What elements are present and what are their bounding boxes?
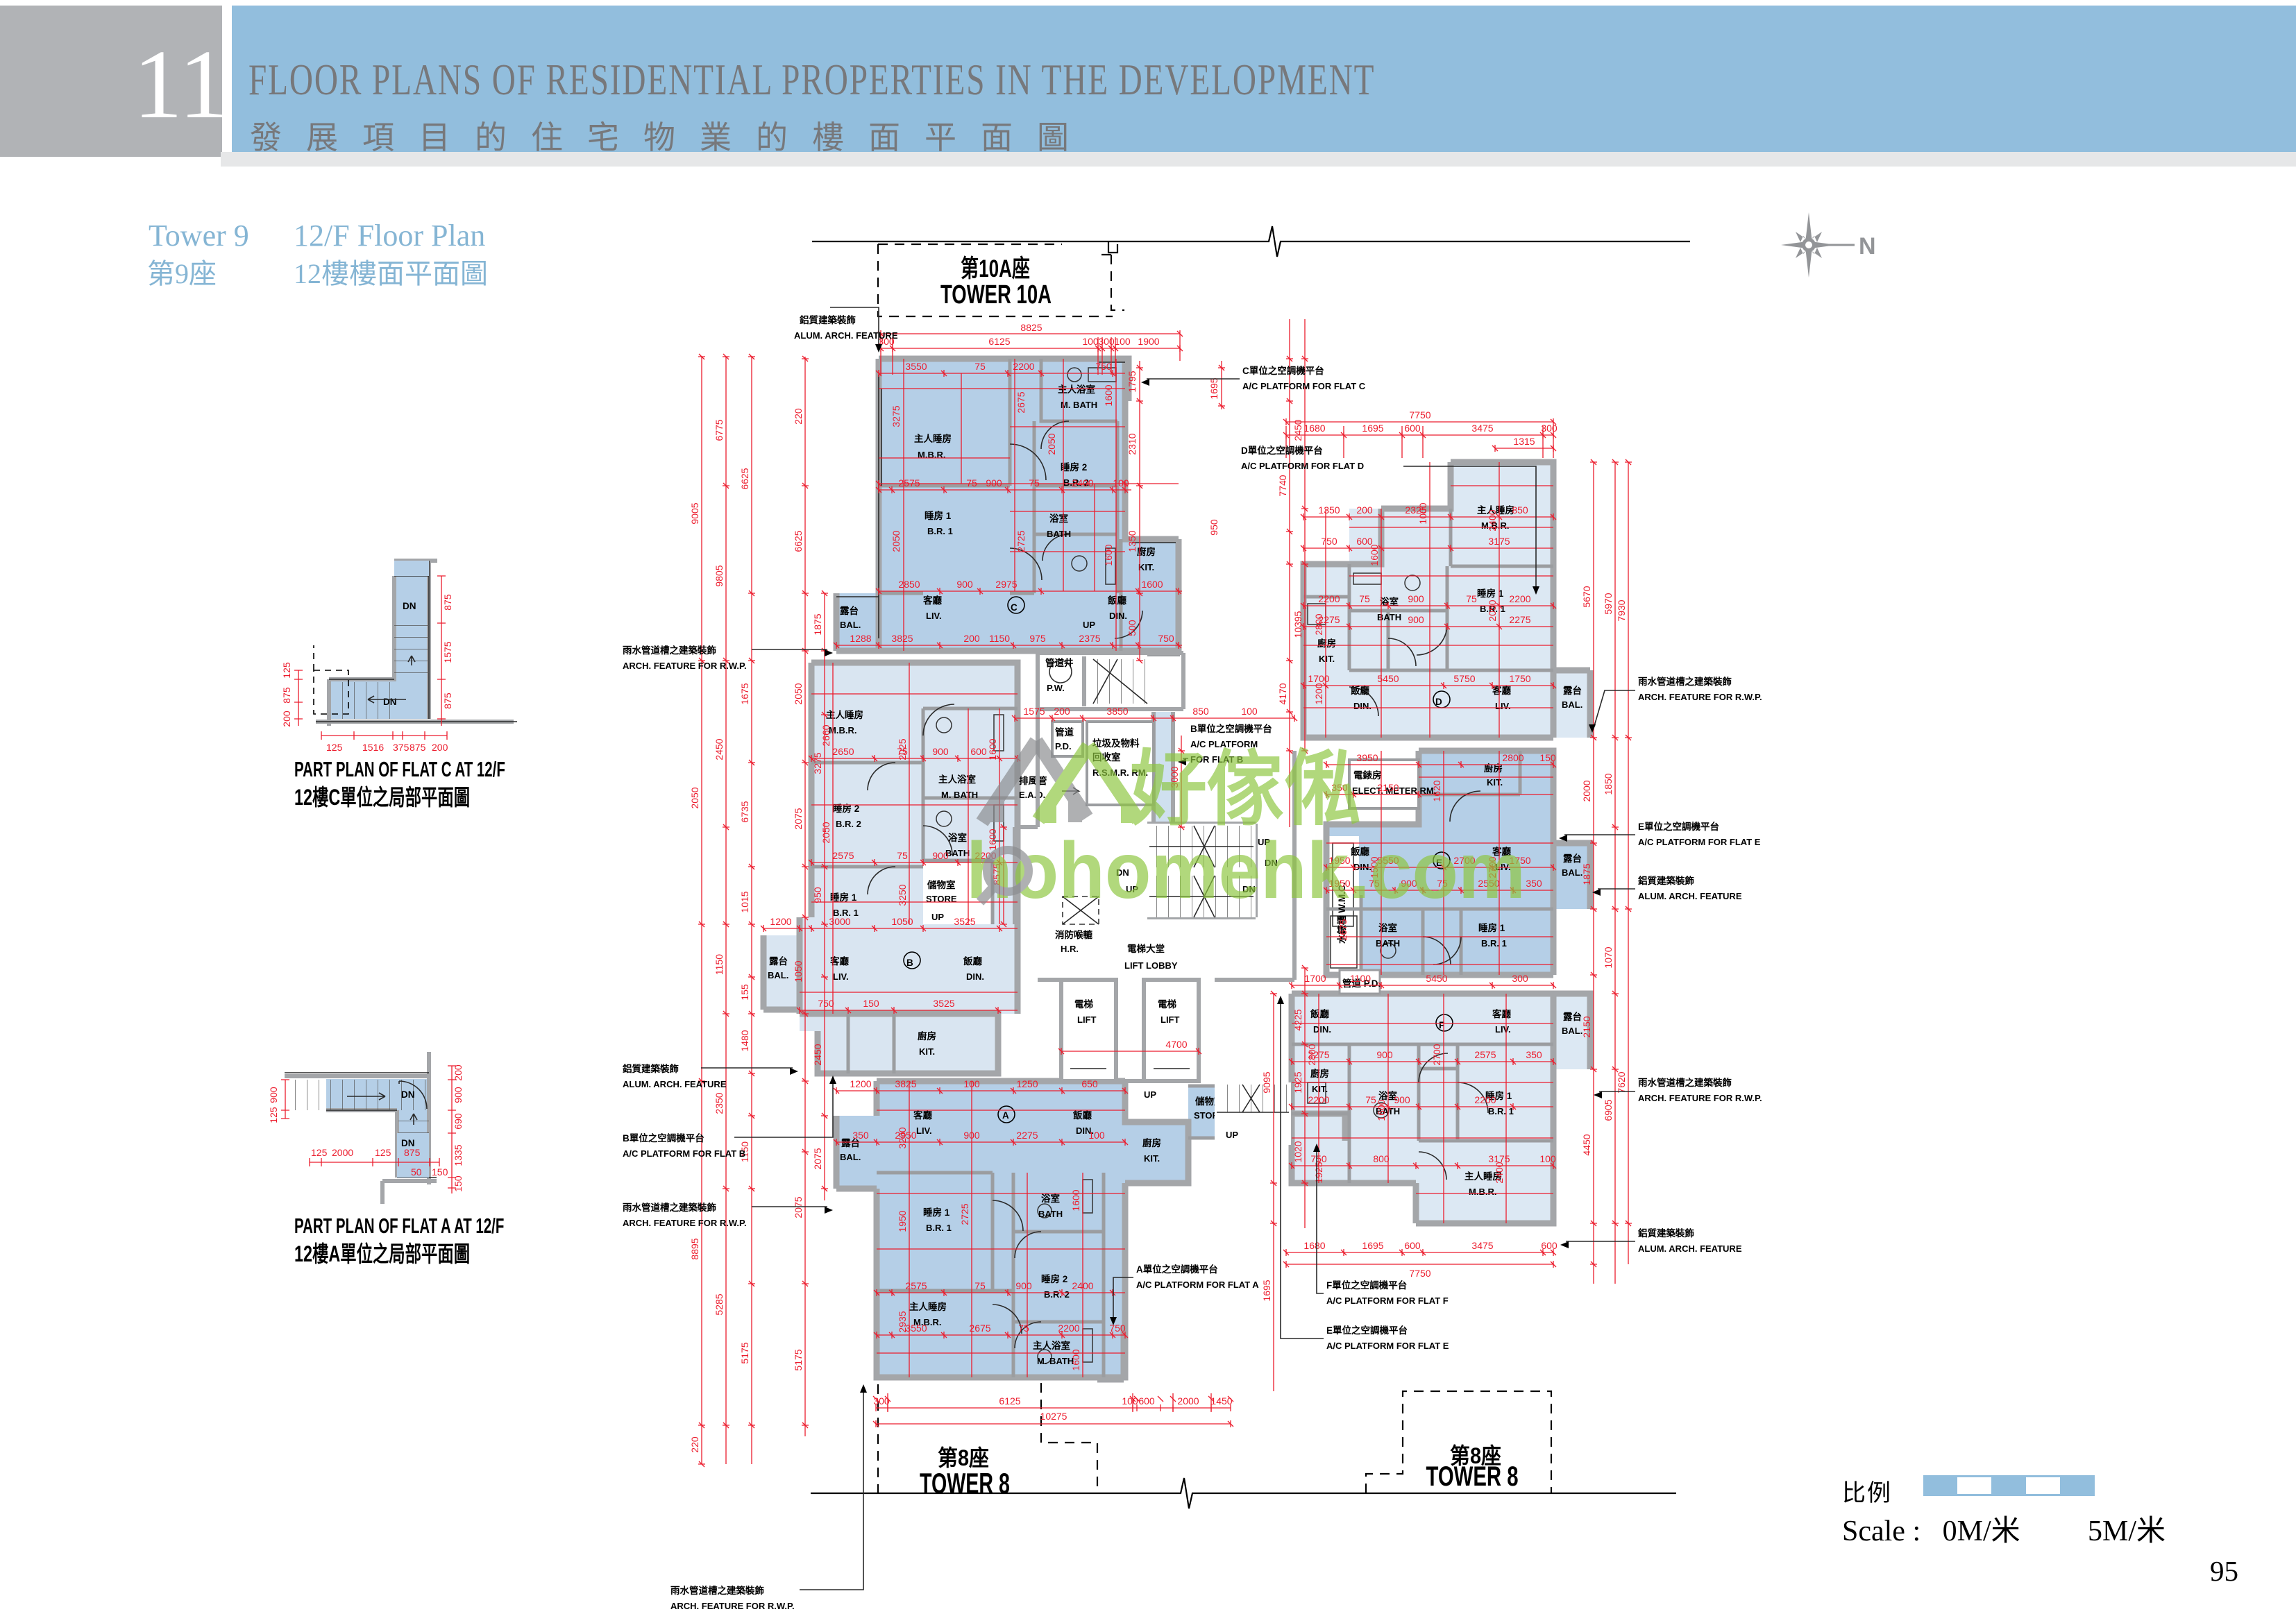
svg-text:75: 75 bbox=[974, 1280, 986, 1291]
svg-text:2375: 2375 bbox=[1079, 633, 1100, 644]
svg-text:2800: 2800 bbox=[1502, 752, 1523, 763]
svg-text:900: 900 bbox=[1394, 1094, 1410, 1105]
svg-text:2800: 2800 bbox=[1313, 613, 1324, 635]
svg-text:100: 100 bbox=[1082, 336, 1099, 347]
svg-text:2200: 2200 bbox=[1013, 361, 1034, 372]
svg-text:KIT.: KIT. bbox=[1138, 562, 1154, 572]
svg-text:3275: 3275 bbox=[890, 405, 902, 427]
svg-text:LIV.: LIV. bbox=[833, 971, 849, 982]
svg-text:100: 100 bbox=[1539, 1153, 1556, 1164]
svg-text:B: B bbox=[906, 958, 913, 968]
svg-text:B單位之空調機平台: B單位之空調機平台 bbox=[623, 1132, 704, 1144]
svg-text:雨水管道槽之建築裝飾: 雨水管道槽之建築裝飾 bbox=[670, 1585, 764, 1596]
svg-text:睡房 2: 睡房 2 bbox=[1061, 461, 1087, 473]
svg-text:100: 100 bbox=[1241, 706, 1258, 717]
svg-text:200: 200 bbox=[1356, 504, 1373, 516]
svg-text:2200: 2200 bbox=[1058, 1323, 1079, 1334]
svg-text:900: 900 bbox=[986, 477, 1002, 488]
svg-text:2075: 2075 bbox=[812, 1148, 823, 1169]
svg-text:1050: 1050 bbox=[891, 916, 913, 927]
svg-text:1600: 1600 bbox=[1376, 1099, 1387, 1121]
svg-text:1875: 1875 bbox=[1581, 863, 1592, 885]
svg-text:主人睡房: 主人睡房 bbox=[914, 433, 952, 444]
svg-text:2050: 2050 bbox=[890, 530, 902, 552]
svg-text:P.W.: P.W. bbox=[1047, 683, 1065, 693]
svg-text:75: 75 bbox=[974, 361, 986, 372]
svg-text:2650: 2650 bbox=[832, 746, 854, 757]
svg-text:4225: 4225 bbox=[1292, 1009, 1303, 1030]
svg-text:A/C PLATFORM FOR FLAT F: A/C PLATFORM FOR FLAT F bbox=[1326, 1295, 1449, 1306]
svg-text:9005: 9005 bbox=[689, 502, 700, 524]
svg-text:BAL.: BAL. bbox=[1562, 1026, 1582, 1036]
svg-text:KIT.: KIT. bbox=[919, 1046, 935, 1057]
svg-text:DN: DN bbox=[383, 697, 397, 707]
svg-text:150: 150 bbox=[1539, 752, 1556, 763]
svg-text:2450: 2450 bbox=[714, 738, 725, 760]
svg-text:100: 100 bbox=[1114, 336, 1131, 347]
svg-text:50: 50 bbox=[411, 1166, 422, 1178]
svg-text:2275: 2275 bbox=[1509, 614, 1530, 625]
svg-text:廚房: 廚房 bbox=[1142, 1137, 1161, 1148]
svg-text:UP: UP bbox=[1083, 620, 1095, 630]
svg-text:主人睡房: 主人睡房 bbox=[826, 709, 863, 720]
svg-text:125: 125 bbox=[326, 742, 343, 753]
svg-text:750: 750 bbox=[1095, 361, 1112, 372]
svg-text:睡房 1: 睡房 1 bbox=[923, 1207, 950, 1218]
svg-text:3825: 3825 bbox=[891, 633, 913, 644]
svg-text:A/C PLATFORM FOR FLAT E: A/C PLATFORM FOR FLAT E bbox=[1326, 1341, 1449, 1351]
svg-text:3525: 3525 bbox=[954, 916, 975, 927]
svg-text:2025: 2025 bbox=[897, 738, 908, 760]
svg-text:2700: 2700 bbox=[1431, 1044, 1442, 1065]
svg-text:2000: 2000 bbox=[1581, 780, 1592, 801]
svg-text:飯廳: 飯廳 bbox=[1072, 1110, 1092, 1121]
svg-text:電梯: 電梯 bbox=[1158, 999, 1177, 1010]
svg-text:露台: 露台 bbox=[1563, 1011, 1582, 1022]
svg-text:75: 75 bbox=[1359, 593, 1370, 604]
svg-text:750: 750 bbox=[1109, 1323, 1126, 1334]
svg-text:1250: 1250 bbox=[1016, 1078, 1038, 1089]
svg-text:浴室: 浴室 bbox=[1049, 513, 1069, 524]
svg-text:2725: 2725 bbox=[959, 1203, 970, 1225]
svg-text:125: 125 bbox=[375, 1147, 391, 1158]
svg-text:500: 500 bbox=[1126, 620, 1138, 636]
svg-text:975: 975 bbox=[1029, 633, 1046, 644]
svg-text:2150: 2150 bbox=[1377, 782, 1399, 793]
svg-text:1700: 1700 bbox=[1304, 973, 1326, 984]
svg-text:300: 300 bbox=[1541, 423, 1558, 434]
svg-text:6905: 6905 bbox=[1603, 1099, 1614, 1121]
svg-text:2575: 2575 bbox=[905, 1280, 927, 1291]
svg-text:2200: 2200 bbox=[1474, 1094, 1496, 1105]
svg-text:好傢俬: 好傢俬 bbox=[1129, 744, 1361, 835]
svg-text:鋁質建築裝飾: 鋁質建築裝飾 bbox=[623, 1063, 679, 1074]
svg-text:1925: 1925 bbox=[1313, 1162, 1324, 1183]
svg-text:消防喉轆: 消防喉轆 bbox=[1055, 929, 1092, 940]
svg-text:1600: 1600 bbox=[1103, 544, 1114, 566]
svg-text:DIN.: DIN. bbox=[1353, 701, 1371, 711]
svg-text:850: 850 bbox=[1192, 706, 1209, 717]
svg-text:7750: 7750 bbox=[1409, 409, 1430, 420]
svg-text:1875: 1875 bbox=[812, 613, 823, 635]
svg-text:1200: 1200 bbox=[770, 916, 791, 927]
svg-text:875: 875 bbox=[442, 594, 453, 611]
svg-text:A/C PLATFORM FOR FLAT D: A/C PLATFORM FOR FLAT D bbox=[1241, 461, 1364, 471]
svg-text:電梯: 電梯 bbox=[1074, 999, 1094, 1010]
svg-text:DN: DN bbox=[403, 601, 416, 611]
svg-text:A/C PLATFORM FOR FLAT C: A/C PLATFORM FOR FLAT C bbox=[1242, 381, 1366, 391]
svg-text:2975: 2975 bbox=[995, 579, 1017, 590]
svg-text:200: 200 bbox=[432, 742, 448, 753]
svg-text:9805: 9805 bbox=[714, 565, 725, 586]
svg-text:1900: 1900 bbox=[1138, 336, 1159, 347]
svg-text:2660: 2660 bbox=[820, 724, 832, 746]
svg-text:2200: 2200 bbox=[1509, 593, 1530, 604]
svg-text:DIN.: DIN. bbox=[1313, 1024, 1331, 1035]
svg-text:露台: 露台 bbox=[769, 955, 788, 967]
svg-text:2675: 2675 bbox=[969, 1323, 990, 1334]
svg-text:1695: 1695 bbox=[1208, 377, 1219, 399]
svg-text:900: 900 bbox=[932, 746, 949, 757]
svg-text:鋁質建築裝飾: 鋁質建築裝飾 bbox=[800, 314, 856, 325]
svg-text:B.R. 2: B.R. 2 bbox=[836, 819, 861, 829]
svg-text:UP: UP bbox=[931, 912, 944, 922]
svg-text:5175: 5175 bbox=[793, 1349, 804, 1370]
svg-text:100: 100 bbox=[1088, 1130, 1105, 1141]
svg-text:900: 900 bbox=[1408, 614, 1424, 625]
svg-text:廚房: 廚房 bbox=[1310, 1068, 1329, 1079]
svg-text:75: 75 bbox=[966, 477, 977, 488]
svg-text:TOWER 8: TOWER 8 bbox=[920, 1467, 1010, 1499]
svg-text:客廳: 客廳 bbox=[913, 1110, 933, 1121]
svg-text:1750: 1750 bbox=[1509, 673, 1530, 684]
svg-text:1020: 1020 bbox=[1292, 1141, 1303, 1162]
svg-text:1288: 1288 bbox=[850, 633, 871, 644]
svg-text:6775: 6775 bbox=[714, 419, 725, 441]
svg-text:1070: 1070 bbox=[1603, 946, 1614, 968]
svg-text:1015: 1015 bbox=[739, 891, 750, 912]
svg-text:UP: UP bbox=[1226, 1130, 1238, 1140]
svg-text:155: 155 bbox=[739, 984, 750, 1001]
svg-text:TOWER 10A: TOWER 10A bbox=[940, 280, 1052, 309]
svg-text:管道: 管道 bbox=[1055, 726, 1074, 738]
svg-text:5450: 5450 bbox=[1426, 973, 1447, 984]
svg-text:2675: 2675 bbox=[1015, 391, 1027, 413]
svg-text:6735: 6735 bbox=[739, 801, 750, 822]
svg-text:2050: 2050 bbox=[820, 822, 832, 843]
svg-text:750: 750 bbox=[1321, 536, 1337, 547]
svg-text:350: 350 bbox=[1526, 1049, 1542, 1060]
svg-text:STORE: STORE bbox=[926, 894, 957, 904]
svg-text:BAL.: BAL. bbox=[1562, 867, 1582, 878]
svg-text:1050: 1050 bbox=[793, 960, 804, 982]
svg-text:1335: 1335 bbox=[453, 1144, 464, 1166]
svg-text:E單位之空調機平台: E單位之空調機平台 bbox=[1638, 821, 1719, 832]
svg-text:露台: 露台 bbox=[1563, 853, 1582, 864]
svg-text:主人睡房: 主人睡房 bbox=[909, 1301, 947, 1312]
svg-text:7620: 7620 bbox=[1616, 1071, 1627, 1093]
svg-text:3550: 3550 bbox=[905, 361, 927, 372]
svg-text:2075: 2075 bbox=[793, 1196, 804, 1218]
svg-text:2275: 2275 bbox=[1016, 1130, 1038, 1141]
svg-text:2450: 2450 bbox=[812, 1044, 823, 1065]
svg-text:350: 350 bbox=[1526, 878, 1542, 889]
svg-text:2075: 2075 bbox=[793, 808, 804, 829]
svg-text:BAL.: BAL. bbox=[840, 620, 861, 630]
svg-text:5175: 5175 bbox=[739, 1342, 750, 1363]
svg-text:2400: 2400 bbox=[1072, 477, 1093, 488]
svg-text:900: 900 bbox=[268, 1087, 279, 1103]
svg-text:1695: 1695 bbox=[1261, 1280, 1272, 1301]
svg-text:900: 900 bbox=[1376, 1049, 1393, 1060]
svg-text:D: D bbox=[1435, 697, 1442, 707]
svg-text:BATH: BATH bbox=[1047, 529, 1071, 539]
svg-text:BAL.: BAL. bbox=[768, 970, 788, 980]
svg-text:600: 600 bbox=[970, 746, 987, 757]
svg-text:M. BATH: M. BATH bbox=[941, 790, 978, 800]
svg-text:100: 100 bbox=[1113, 477, 1129, 488]
svg-text:1150: 1150 bbox=[714, 954, 725, 975]
svg-text:2050: 2050 bbox=[689, 787, 700, 808]
svg-text:1315: 1315 bbox=[1513, 436, 1535, 447]
svg-text:A: A bbox=[1002, 1110, 1009, 1121]
svg-text:飯廳: 飯廳 bbox=[963, 955, 983, 967]
svg-text:2050: 2050 bbox=[793, 683, 804, 704]
svg-text:ARCH. FEATURE FOR R.W.P.: ARCH. FEATURE FOR R.W.P. bbox=[623, 1218, 747, 1228]
svg-text:BAL.: BAL. bbox=[1562, 699, 1582, 710]
svg-text:E.A.D.: E.A.D. bbox=[1019, 790, 1045, 800]
svg-text:6625: 6625 bbox=[793, 530, 804, 552]
svg-text:300: 300 bbox=[1512, 973, 1528, 984]
svg-text:1680: 1680 bbox=[1303, 1240, 1325, 1251]
svg-text:飯廳: 飯廳 bbox=[1310, 1008, 1330, 1019]
svg-text:1350: 1350 bbox=[1126, 530, 1138, 552]
svg-text:鋁質建築裝飾: 鋁質建築裝飾 bbox=[1638, 875, 1694, 886]
svg-text:1600: 1600 bbox=[1141, 579, 1163, 590]
svg-text:C: C bbox=[1011, 602, 1018, 613]
svg-text:950: 950 bbox=[812, 887, 823, 903]
svg-text:5670: 5670 bbox=[1581, 586, 1592, 607]
svg-text:3550: 3550 bbox=[905, 1323, 927, 1334]
svg-text:1600: 1600 bbox=[1070, 1189, 1081, 1211]
svg-text:LIFT: LIFT bbox=[1077, 1014, 1096, 1025]
svg-text:2675: 2675 bbox=[1337, 919, 1349, 940]
svg-text:2400: 2400 bbox=[1487, 509, 1498, 531]
svg-text:TOWER 8: TOWER 8 bbox=[1426, 1461, 1519, 1492]
svg-text:1675: 1675 bbox=[739, 683, 750, 704]
svg-text:ARCH. FEATURE FOR R.W.P.: ARCH. FEATURE FOR R.W.P. bbox=[1638, 1093, 1762, 1103]
svg-text:950: 950 bbox=[1208, 519, 1219, 536]
svg-text:雨水管道槽之建築裝飾: 雨水管道槽之建築裝飾 bbox=[1638, 1077, 1732, 1088]
svg-text:1575: 1575 bbox=[442, 641, 453, 663]
svg-text:2800: 2800 bbox=[1306, 1044, 1317, 1065]
svg-text:9095: 9095 bbox=[1261, 1071, 1272, 1093]
svg-text:1200: 1200 bbox=[1313, 683, 1324, 704]
svg-text:2400: 2400 bbox=[1494, 1162, 1505, 1183]
svg-text:690: 690 bbox=[453, 1113, 464, 1130]
svg-text:1350: 1350 bbox=[1318, 504, 1340, 516]
svg-text:3275: 3275 bbox=[812, 752, 823, 774]
svg-text:1600: 1600 bbox=[1369, 544, 1380, 566]
svg-text:125: 125 bbox=[268, 1107, 279, 1123]
svg-text:1575: 1575 bbox=[1023, 706, 1045, 717]
svg-text:F單位之空調機平台: F單位之空調機平台 bbox=[1326, 1280, 1407, 1291]
svg-text:A單位之空調機平台: A單位之空調機平台 bbox=[1136, 1264, 1218, 1275]
svg-text:B.R. 1: B.R. 1 bbox=[1488, 1106, 1514, 1116]
svg-text:900: 900 bbox=[956, 579, 973, 590]
svg-text:7930: 7930 bbox=[1616, 600, 1627, 621]
svg-text:900: 900 bbox=[932, 850, 949, 861]
svg-text:200: 200 bbox=[963, 633, 980, 644]
svg-text:ALUM. ARCH. FEATURE: ALUM. ARCH. FEATURE bbox=[1638, 891, 1742, 901]
svg-text:875: 875 bbox=[410, 742, 426, 753]
svg-text:睡房 2: 睡房 2 bbox=[1041, 1273, 1067, 1284]
svg-text:5285: 5285 bbox=[714, 1293, 725, 1315]
svg-text:220: 220 bbox=[793, 408, 804, 425]
svg-text:75: 75 bbox=[1029, 477, 1040, 488]
svg-text:800: 800 bbox=[1373, 1153, 1390, 1164]
svg-text:ALUM. ARCH. FEATURE: ALUM. ARCH. FEATURE bbox=[623, 1079, 727, 1089]
svg-text:客廳: 客廳 bbox=[1492, 1008, 1512, 1019]
svg-text:B.R. 1: B.R. 1 bbox=[927, 526, 953, 536]
svg-text:2000: 2000 bbox=[332, 1147, 353, 1158]
svg-text:客廳: 客廳 bbox=[922, 595, 943, 606]
svg-text:儲物室: 儲物室 bbox=[927, 879, 956, 890]
svg-text:1850: 1850 bbox=[1603, 773, 1614, 794]
svg-text:7740: 7740 bbox=[1277, 475, 1288, 496]
svg-text:LIV.: LIV. bbox=[1495, 701, 1511, 711]
svg-text:D單位之空調機平台: D單位之空調機平台 bbox=[1241, 445, 1323, 456]
svg-text:650: 650 bbox=[1081, 1078, 1098, 1089]
svg-text:UP: UP bbox=[1144, 1089, 1156, 1100]
svg-text:M. BATH: M. BATH bbox=[1037, 1356, 1074, 1366]
svg-text:10275: 10275 bbox=[1040, 1411, 1067, 1422]
svg-text:900: 900 bbox=[453, 1087, 464, 1103]
svg-text:220: 220 bbox=[689, 1436, 700, 1453]
svg-text:LIV.: LIV. bbox=[1495, 1024, 1511, 1035]
svg-text:B.R. 2: B.R. 2 bbox=[1044, 1289, 1070, 1300]
svg-text:雨水管道槽之建築裝飾: 雨水管道槽之建築裝飾 bbox=[623, 1202, 716, 1213]
svg-text:375: 375 bbox=[393, 742, 410, 753]
svg-text:3200: 3200 bbox=[897, 1127, 908, 1148]
svg-text:2575: 2575 bbox=[832, 850, 854, 861]
svg-text:1600: 1600 bbox=[987, 738, 998, 760]
svg-text:1795: 1795 bbox=[1126, 371, 1138, 392]
svg-text:600: 600 bbox=[1404, 1240, 1421, 1251]
svg-text:雨水管道槽之建築裝飾: 雨水管道槽之建築裝飾 bbox=[1638, 676, 1732, 687]
svg-text:875: 875 bbox=[281, 687, 292, 704]
svg-text:E單位之空調機平台: E單位之空調機平台 bbox=[1326, 1325, 1408, 1336]
svg-text:睡房 1: 睡房 1 bbox=[830, 892, 857, 903]
svg-text:BATH: BATH bbox=[1377, 612, 1401, 622]
svg-text:125: 125 bbox=[281, 662, 292, 679]
svg-text:2575: 2575 bbox=[898, 477, 920, 488]
svg-text:hohomehk.com: hohomehk.com bbox=[966, 826, 1526, 915]
svg-text:1480: 1480 bbox=[739, 1030, 750, 1051]
svg-text:4450: 4450 bbox=[1581, 1134, 1592, 1155]
svg-text:客廳: 客廳 bbox=[829, 955, 850, 967]
svg-text:2575: 2575 bbox=[1474, 1049, 1496, 1060]
svg-text:600: 600 bbox=[1541, 1240, 1558, 1251]
svg-text:7750: 7750 bbox=[1409, 1268, 1430, 1279]
svg-text:C單位之空調機平台: C單位之空調機平台 bbox=[1242, 365, 1324, 376]
svg-text:5450: 5450 bbox=[1377, 673, 1399, 684]
svg-text:200: 200 bbox=[453, 1064, 464, 1081]
svg-text:DIN.: DIN. bbox=[1109, 611, 1127, 621]
svg-text:2150: 2150 bbox=[1581, 1016, 1592, 1037]
svg-text:浴室: 浴室 bbox=[948, 832, 968, 843]
svg-text:125: 125 bbox=[311, 1147, 328, 1158]
svg-text:2725: 2725 bbox=[1015, 530, 1027, 552]
svg-text:6125: 6125 bbox=[988, 336, 1010, 347]
svg-text:1600: 1600 bbox=[1103, 384, 1114, 406]
svg-text:200: 200 bbox=[1054, 706, 1070, 717]
svg-text:2200: 2200 bbox=[1318, 593, 1340, 604]
svg-text:睡房 1: 睡房 1 bbox=[1478, 922, 1505, 933]
svg-text:850: 850 bbox=[1512, 504, 1528, 516]
svg-text:750: 750 bbox=[818, 998, 834, 1009]
svg-text:2850: 2850 bbox=[898, 579, 920, 590]
svg-text:BATH: BATH bbox=[1376, 938, 1400, 949]
svg-text:4170: 4170 bbox=[1277, 683, 1288, 704]
svg-text:5970: 5970 bbox=[1603, 593, 1614, 614]
svg-text:管道井: 管道井 bbox=[1045, 657, 1074, 668]
svg-text:1150: 1150 bbox=[989, 633, 1010, 644]
svg-text:M.B.R.: M.B.R. bbox=[1469, 1187, 1496, 1197]
svg-text:第10A座: 第10A座 bbox=[961, 255, 1030, 282]
svg-text:主人浴室: 主人浴室 bbox=[1033, 1340, 1070, 1351]
svg-text:雨水管道槽之建築裝飾: 雨水管道槽之建築裝飾 bbox=[623, 645, 716, 656]
svg-text:KIT.: KIT. bbox=[1312, 1084, 1328, 1094]
svg-text:BAL.: BAL. bbox=[840, 1152, 861, 1162]
svg-text:900: 900 bbox=[1015, 1280, 1032, 1291]
svg-text:排風管: 排風管 bbox=[1019, 775, 1047, 786]
svg-text:3000: 3000 bbox=[829, 916, 850, 927]
svg-text:150: 150 bbox=[453, 1175, 464, 1192]
svg-text:2000: 2000 bbox=[1177, 1395, 1199, 1407]
svg-text:200: 200 bbox=[281, 711, 292, 727]
svg-text:6125: 6125 bbox=[999, 1395, 1020, 1407]
svg-text:B單位之空調機平台: B單位之空調機平台 bbox=[1190, 723, 1272, 734]
svg-text:2050: 2050 bbox=[1046, 433, 1057, 454]
svg-text:ARCH. FEATURE FOR R.W.P.: ARCH. FEATURE FOR R.W.P. bbox=[623, 661, 747, 671]
svg-text:150: 150 bbox=[432, 1166, 448, 1178]
svg-text:B.R. 1: B.R. 1 bbox=[926, 1223, 952, 1233]
svg-text:KIT.: KIT. bbox=[1144, 1153, 1160, 1164]
svg-text:露台: 露台 bbox=[1563, 685, 1582, 696]
svg-text:1620: 1620 bbox=[1431, 780, 1442, 801]
svg-text:露台: 露台 bbox=[840, 605, 859, 616]
svg-text:3475: 3475 bbox=[1471, 1240, 1493, 1251]
svg-text:1700: 1700 bbox=[1308, 673, 1329, 684]
svg-text:H.R.: H.R. bbox=[1061, 944, 1079, 954]
svg-text:75: 75 bbox=[897, 850, 908, 861]
svg-text:ALUM. ARCH. FEATURE: ALUM. ARCH. FEATURE bbox=[1638, 1243, 1742, 1254]
svg-text:5750: 5750 bbox=[1453, 673, 1475, 684]
svg-text:1200: 1200 bbox=[850, 1078, 871, 1089]
svg-text:電梯大堂: 電梯大堂 bbox=[1127, 943, 1165, 954]
svg-text:3475: 3475 bbox=[1471, 423, 1493, 434]
svg-text:睡房 1: 睡房 1 bbox=[925, 510, 952, 521]
svg-text:主人浴室: 主人浴室 bbox=[938, 774, 976, 785]
svg-text:3525: 3525 bbox=[933, 998, 954, 1009]
svg-text:1950: 1950 bbox=[897, 1210, 908, 1232]
svg-text:M. BATH: M. BATH bbox=[1061, 400, 1097, 410]
svg-text:M.B.R.: M.B.R. bbox=[918, 450, 945, 460]
svg-text:3825: 3825 bbox=[895, 1078, 916, 1089]
svg-text:LIFT LOBBY: LIFT LOBBY bbox=[1124, 960, 1178, 971]
svg-text:2050: 2050 bbox=[1487, 600, 1498, 621]
